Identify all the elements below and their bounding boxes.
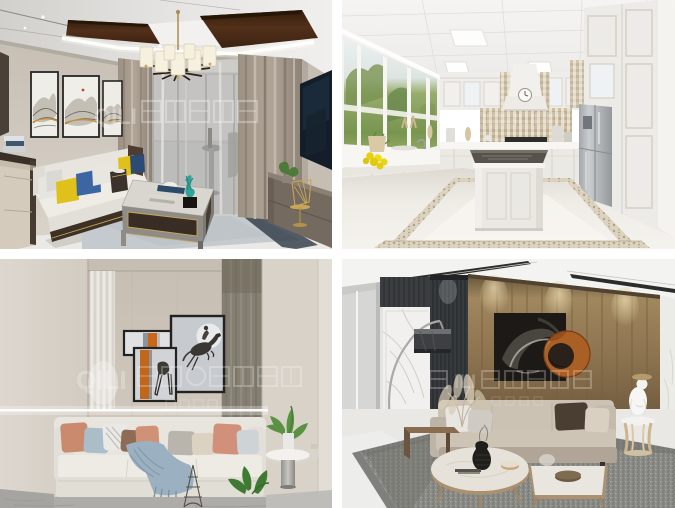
svg-text:ILI: ILI bbox=[454, 372, 476, 393]
svg-text:QILI: QILI bbox=[94, 104, 137, 129]
svg-text:QILI: QILI bbox=[76, 365, 127, 395]
svg-text:QILI: QILI bbox=[438, 113, 467, 130]
